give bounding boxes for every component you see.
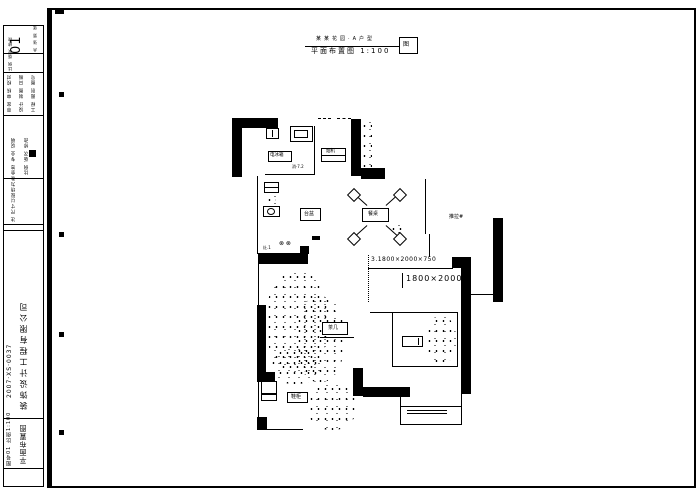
partition-dining (425, 179, 426, 234)
door-dash (337, 118, 351, 119)
sign-row: 比例 版次 修改 (25, 120, 30, 175)
fridge-label: 电冰箱 (270, 154, 284, 159)
washer-line (264, 187, 279, 188)
dashed-partition (368, 255, 369, 302)
wall-bath-bottom (258, 253, 308, 264)
chair-strut (356, 225, 368, 236)
dining-label: 餐桌 (368, 212, 378, 217)
partition-kitchen (265, 174, 315, 175)
window-bay-right (461, 394, 462, 425)
hood-midline (321, 155, 346, 156)
wall-bay-right (493, 218, 503, 302)
balcony-cabinet (261, 381, 277, 394)
registration-mark (59, 232, 64, 237)
stove-tag: 灶.1 (263, 246, 271, 250)
balcony-edge (265, 429, 303, 430)
title-block-divider (3, 115, 44, 116)
wall-thin-left-b (258, 373, 259, 419)
dining-chair (393, 188, 407, 202)
sheet-border-top (47, 8, 696, 10)
drawing-name: 平面布置图 (20, 424, 27, 464)
wall-entry-right (351, 119, 361, 176)
plant-texture (270, 348, 320, 384)
revision-row: 比例 版次 修改 (8, 56, 12, 71)
bay-connector (471, 294, 493, 295)
cabinet-divider (272, 130, 273, 137)
dimension-line (368, 268, 453, 269)
title-block-divider (3, 178, 44, 179)
drawing-meta: 图号01 比例1:100 (7, 422, 12, 466)
kitchen-tag: 消·7.2 (292, 165, 304, 169)
title-block-divider (3, 468, 44, 469)
wall-bottom-mid-v (353, 368, 363, 396)
wall-bottom-mid-h (363, 387, 410, 397)
wall-hatch (361, 121, 372, 168)
bed-dimension: 3.1800×2000×750 (371, 257, 436, 263)
design-row: 设计 制图 日期 (20, 76, 25, 112)
pillow-line (418, 338, 419, 345)
window-bay-left (400, 395, 401, 425)
stand-label: 鞋柜 (291, 395, 301, 400)
coffee-label: 茶几 (328, 326, 338, 331)
sink-basin (294, 130, 308, 138)
sheet-border-bottom (47, 486, 696, 488)
dining-chair (347, 232, 361, 246)
title-block-divider (3, 230, 44, 231)
bed-texture (426, 316, 456, 364)
wall-living-left (257, 305, 266, 373)
title-block-divider (3, 72, 44, 73)
pillow (402, 336, 423, 347)
dining-texture (390, 224, 406, 238)
title-block-divider (3, 224, 44, 225)
sheet-note: 共 张 第 张 (33, 27, 37, 52)
door-tag: 推拉# (449, 215, 463, 220)
title-block-stamp (29, 150, 36, 157)
drawing-subtitle: 某某花园·A户型 (316, 37, 375, 42)
note-row: 注 尺寸以现场为准 (12, 182, 17, 222)
cad-sheet: 01 共 张 第 张 比例 版次 修改 审定 审核 校对 设计 制图 日期 工程… (0, 0, 700, 490)
wall-bedroom-right (461, 262, 471, 394)
door-dash (318, 118, 331, 119)
project-row: 工程 图别 图号 (32, 76, 37, 112)
window-line (407, 413, 447, 414)
balcony-cabinet-low (261, 394, 277, 401)
registration-mark (59, 430, 64, 435)
toilet-bowl (267, 208, 275, 215)
plant-texture (308, 384, 356, 430)
window-line (400, 406, 461, 407)
dining-chair (347, 188, 361, 202)
firm-name: 装饰设计工程有限公司 (20, 240, 28, 410)
title-box-mark: 图 (403, 42, 409, 48)
firm-number: 2007·XS·0037 (7, 258, 13, 398)
dimension-tick (402, 273, 403, 288)
corner-mark (55, 8, 64, 14)
partition-hall (257, 176, 258, 254)
basin-label: 台盆 (304, 212, 314, 217)
wall-thin-left-a (258, 264, 259, 305)
registration-mark (59, 332, 64, 337)
partition-kitchen-right (314, 126, 315, 175)
wall-bath-notch (300, 246, 309, 254)
hood-label: 烟机 (326, 150, 335, 155)
bed-size: 1800×2000 (406, 275, 462, 283)
window-line (407, 410, 447, 411)
drawing-title: 平面布置图 1:100 (311, 48, 390, 55)
sheet-border-right (694, 8, 696, 488)
wall-stub (312, 236, 320, 240)
stove-burners: ⊗ ⊗ (279, 241, 291, 247)
sheet-border-left (47, 8, 52, 488)
scale-row: 会签 专业 说明 (12, 120, 17, 175)
registration-mark (59, 92, 64, 97)
window-sill (400, 424, 461, 425)
approval-row: 审定 审核 校对 (8, 76, 13, 112)
partition-dining-jog (429, 234, 430, 257)
wall-kitchen-left (232, 118, 242, 177)
wall-entry-step (361, 168, 385, 179)
